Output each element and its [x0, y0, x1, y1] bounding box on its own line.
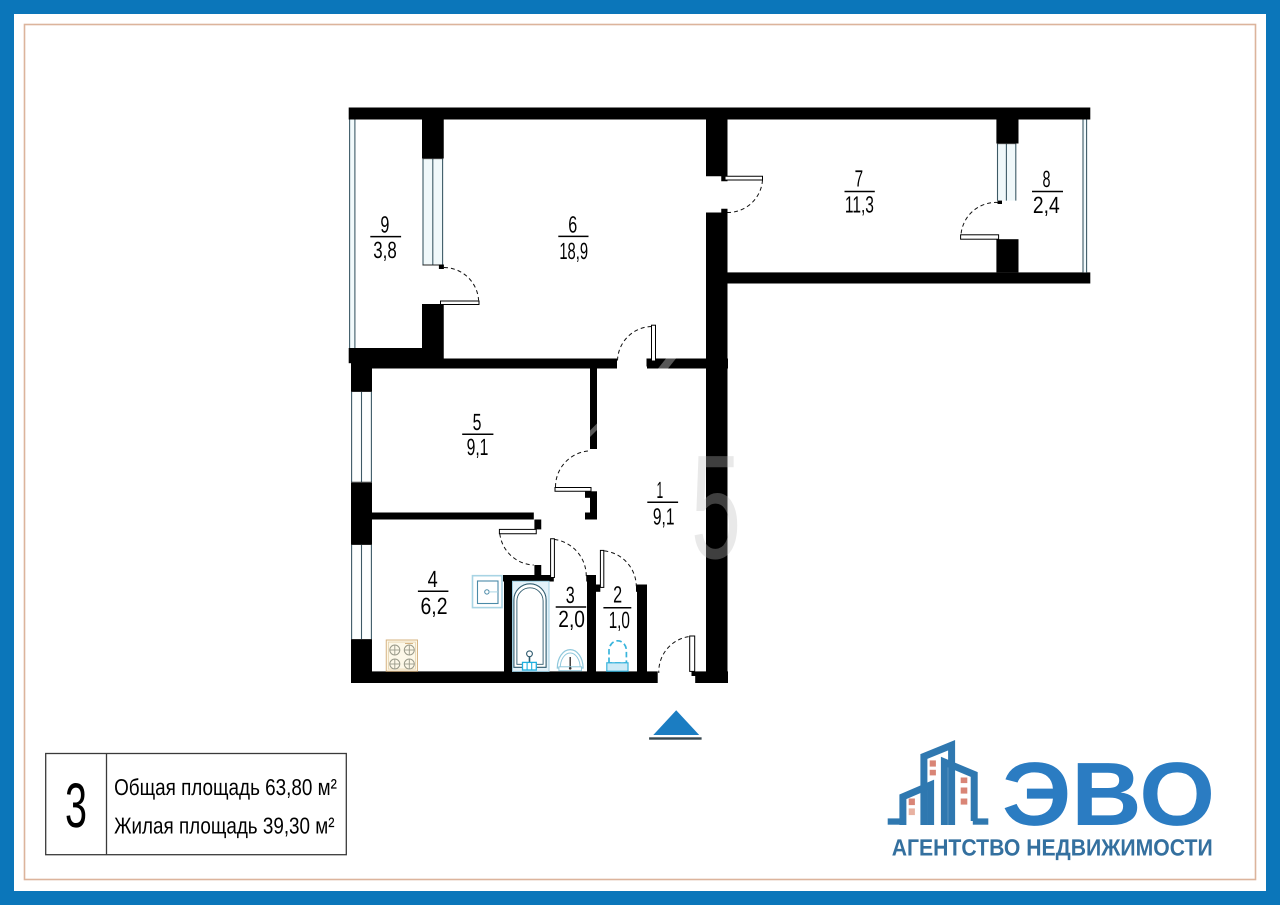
svg-text:11,3: 11,3	[845, 192, 874, 218]
svg-text:1,0: 1,0	[609, 607, 630, 633]
svg-text:3: 3	[566, 582, 575, 608]
svg-text:АГЕНТСТВО НЕДВИЖИМОСТИ: АГЕНТСТВО НЕДВИЖИМОСТИ	[892, 835, 1213, 861]
svg-text:18,9: 18,9	[559, 238, 588, 264]
svg-text:ЭВО: ЭВО	[1002, 745, 1215, 845]
svg-text:9,1: 9,1	[653, 503, 675, 529]
svg-text:8: 8	[1043, 166, 1051, 192]
svg-text:Жилая площадь 39,30 м²: Жилая площадь 39,30 м²	[114, 813, 335, 839]
svg-text:4: 4	[428, 566, 438, 592]
svg-text:6,2: 6,2	[421, 593, 448, 619]
svg-text:3: 3	[65, 771, 87, 841]
svg-text:9,1: 9,1	[467, 434, 489, 460]
svg-text:2: 2	[613, 582, 622, 608]
svg-text:5: 5	[691, 425, 741, 590]
svg-text:Общая площадь 63,80 м²: Общая площадь 63,80 м²	[114, 774, 337, 800]
svg-text:2,0: 2,0	[558, 606, 585, 632]
svg-text:3,8: 3,8	[373, 237, 397, 263]
svg-text:2,4: 2,4	[1033, 192, 1060, 218]
svg-text:5: 5	[473, 409, 482, 435]
svg-text:9: 9	[380, 212, 389, 238]
svg-text:7: 7	[855, 166, 864, 192]
svg-text:1: 1	[656, 477, 663, 503]
svg-text:6: 6	[568, 211, 577, 237]
